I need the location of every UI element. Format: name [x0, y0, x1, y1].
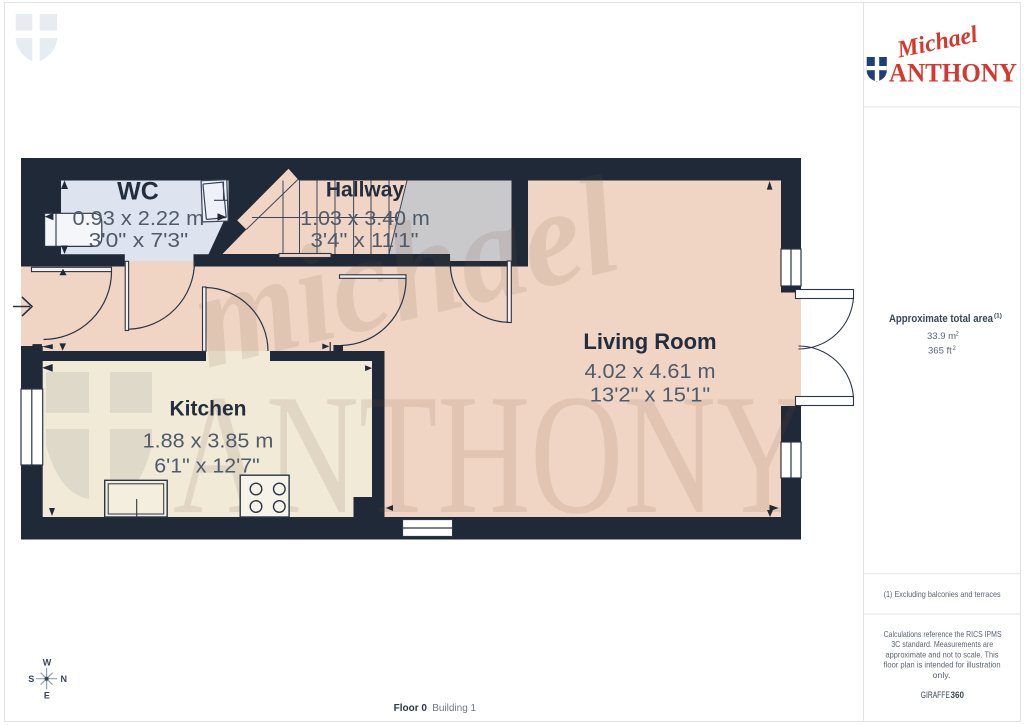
svg-text:GIRAFFE: GIRAFFE [921, 690, 950, 700]
svg-text:Calculations reference the RIC: Calculations reference the RICS IPMS [884, 629, 1002, 639]
svg-text:13'2" x 15'1": 13'2" x 15'1" [590, 385, 710, 407]
svg-text:Floor 0: Floor 0 [394, 703, 428, 714]
svg-text:E: E [44, 691, 50, 701]
svg-text:Building 1: Building 1 [432, 703, 476, 714]
svg-text:ANTHONY: ANTHONY [889, 59, 1017, 88]
svg-text:S: S [28, 674, 34, 684]
svg-text:W: W [43, 658, 52, 668]
svg-text:3'4" x 11'1": 3'4" x 11'1" [311, 230, 419, 252]
svg-text:only.: only. [933, 670, 951, 680]
svg-text:1.88 x 3.85 m: 1.88 x 3.85 m [143, 431, 274, 453]
svg-text:floor plan is intended for ill: floor plan is intended for illustration [884, 660, 1001, 670]
svg-text:approximate and not to scale.: approximate and not to scale. This [886, 649, 999, 659]
svg-text:4.02 x 4.61 m: 4.02 x 4.61 m [585, 361, 716, 383]
svg-text:N: N [60, 674, 67, 684]
svg-text:Living Room: Living Room [583, 329, 716, 354]
svg-text:3C standard. Measurements are: 3C standard. Measurements are [891, 639, 993, 649]
svg-text:ANTHONY: ANTHONY [173, 360, 809, 550]
svg-text:WC: WC [117, 178, 159, 206]
svg-text:360: 360 [951, 690, 965, 700]
svg-text:365 ft: 365 ft [928, 346, 952, 357]
svg-text:Approximate total area: Approximate total area [889, 313, 994, 325]
svg-text:1.03 x 3.40 m: 1.03 x 3.40 m [300, 208, 430, 230]
svg-text:0.93 x 2.22 m: 0.93 x 2.22 m [72, 208, 204, 230]
svg-text:33.9 m: 33.9 m [927, 331, 956, 342]
svg-text:Kitchen: Kitchen [169, 398, 246, 421]
svg-text:3'0" x 7'3": 3'0" x 7'3" [89, 230, 189, 252]
svg-text:(1) Excluding balconies and te: (1) Excluding balconies and terraces [884, 589, 1001, 599]
svg-text:(1): (1) [994, 313, 1002, 320]
svg-text:6'1" x 12'7": 6'1" x 12'7" [154, 456, 260, 478]
svg-text:Hallway: Hallway [326, 179, 405, 202]
